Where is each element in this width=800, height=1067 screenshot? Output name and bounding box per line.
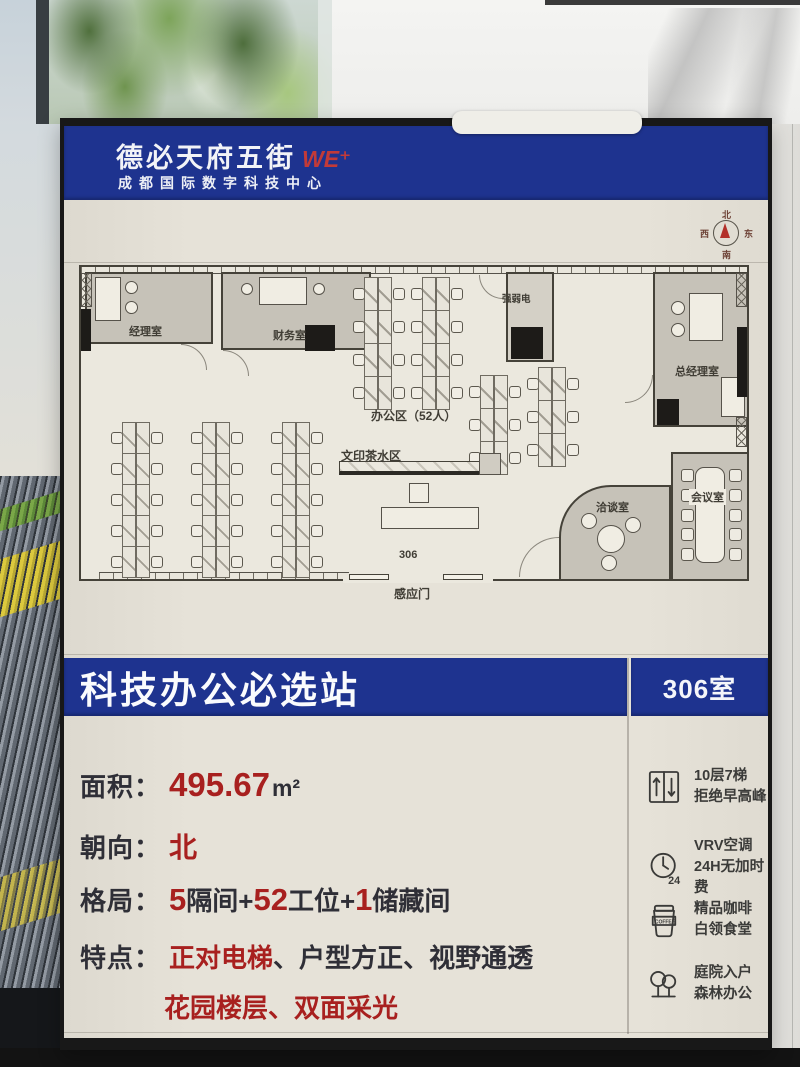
pillar bbox=[81, 309, 91, 351]
orientation-value: 北 bbox=[169, 826, 197, 866]
chair bbox=[125, 281, 138, 294]
compass-west-label: 西 bbox=[700, 227, 709, 240]
chair bbox=[411, 354, 423, 366]
room-negotiation-label: 洽谈室 bbox=[596, 499, 629, 515]
chair bbox=[311, 525, 323, 537]
chair bbox=[125, 301, 138, 314]
compass-east-label: 东 bbox=[744, 227, 753, 240]
door-swing bbox=[479, 275, 503, 299]
chair bbox=[311, 463, 323, 475]
chair bbox=[451, 387, 463, 399]
room-electrical-label: 强弱电 bbox=[502, 291, 531, 305]
poster-base bbox=[0, 1048, 800, 1067]
desk bbox=[282, 484, 296, 516]
chair bbox=[729, 548, 742, 561]
pillar bbox=[511, 327, 543, 359]
compass-south-label: 南 bbox=[722, 248, 731, 261]
desk bbox=[552, 367, 566, 401]
desk bbox=[216, 515, 230, 547]
desk bbox=[122, 546, 136, 578]
desk bbox=[436, 343, 450, 377]
desk bbox=[95, 277, 121, 321]
chair bbox=[191, 432, 203, 444]
chair bbox=[353, 288, 365, 300]
chair bbox=[111, 556, 123, 568]
desk bbox=[436, 376, 450, 410]
chair bbox=[151, 556, 163, 568]
chair bbox=[567, 444, 579, 456]
clock-24-badge: 24 bbox=[668, 874, 680, 886]
chair bbox=[311, 432, 323, 444]
desk bbox=[282, 453, 296, 485]
chair bbox=[231, 494, 243, 506]
compass-icon: 北 南 西 东 bbox=[700, 208, 752, 258]
room-number-label: 306 bbox=[399, 549, 417, 561]
chair bbox=[111, 494, 123, 506]
chair bbox=[729, 489, 742, 502]
chair bbox=[729, 528, 742, 541]
chair bbox=[567, 411, 579, 423]
layout-label: 格局： bbox=[80, 881, 161, 918]
chair bbox=[527, 444, 539, 456]
amenity-elevator: 10层7梯拒绝早高峰 bbox=[644, 765, 768, 809]
desk bbox=[296, 546, 310, 578]
door-swing bbox=[223, 350, 249, 376]
chair bbox=[353, 387, 365, 399]
room-finance-label: 财务室 bbox=[273, 327, 306, 343]
banner: 科技办公必选站 bbox=[64, 658, 627, 716]
desk bbox=[282, 422, 296, 454]
banner-room-box: 306室 bbox=[631, 658, 768, 716]
coffee-badge: COFFEE bbox=[655, 919, 676, 925]
chair bbox=[313, 283, 325, 295]
feature-separator: 、 bbox=[273, 938, 299, 975]
chair bbox=[625, 517, 641, 533]
window-bright-edge bbox=[318, 0, 332, 124]
chair bbox=[231, 463, 243, 475]
window-frame bbox=[36, 0, 49, 124]
layout-count-seats: 52 bbox=[253, 882, 287, 918]
desk bbox=[552, 400, 566, 434]
window-with-trees bbox=[36, 0, 332, 124]
desk bbox=[422, 343, 436, 377]
chair bbox=[271, 463, 283, 475]
chair-column bbox=[681, 469, 694, 561]
desk bbox=[282, 515, 296, 547]
chair bbox=[567, 378, 579, 390]
compass-north-label: 北 bbox=[722, 208, 731, 221]
floor-plan: 经理室 财务室 强弱电 总经理室 洽谈室 办公区（52人） bbox=[79, 265, 749, 581]
desk bbox=[136, 422, 150, 454]
desk bbox=[122, 422, 136, 454]
amenity-line1: 精品咖啡 bbox=[694, 899, 752, 920]
feature-double-light: 双面采光 bbox=[294, 988, 398, 1025]
feature-garden-floor: 花园楼层 bbox=[164, 988, 268, 1025]
desk bbox=[202, 546, 216, 578]
desk-cluster bbox=[353, 277, 404, 409]
desk bbox=[364, 310, 378, 344]
chair bbox=[271, 525, 283, 537]
elevator-icon bbox=[644, 765, 684, 809]
sensor-door-label: 感应门 bbox=[394, 585, 430, 602]
chair bbox=[151, 525, 163, 537]
chair bbox=[111, 463, 123, 475]
carpet-stripe-yellow bbox=[0, 852, 62, 934]
desk bbox=[136, 515, 150, 547]
desk bbox=[136, 546, 150, 578]
desk bbox=[364, 376, 378, 410]
desk bbox=[259, 277, 307, 305]
desk bbox=[552, 433, 566, 467]
desk bbox=[296, 422, 310, 454]
chair bbox=[729, 469, 742, 482]
amenity-line1: 10层7梯 bbox=[694, 766, 767, 787]
chair bbox=[451, 321, 463, 333]
desk bbox=[216, 546, 230, 578]
room-manager-label: 经理室 bbox=[129, 323, 162, 339]
desk bbox=[296, 515, 310, 547]
chair bbox=[111, 432, 123, 444]
layout-text: 工位+ bbox=[288, 881, 355, 918]
desk bbox=[364, 277, 378, 311]
desk bbox=[378, 376, 392, 410]
clock-24-icon: 24 bbox=[644, 846, 684, 890]
chair bbox=[729, 509, 742, 522]
amenity-line1: 庭院入户 bbox=[694, 963, 752, 984]
amenity-line1: VRV空调 bbox=[694, 836, 768, 857]
desk bbox=[422, 277, 436, 311]
wall-brace bbox=[81, 273, 92, 307]
brand-logo: 德必天府五街 bbox=[116, 143, 296, 173]
area-value: 495.67 bbox=[169, 766, 270, 804]
desk bbox=[136, 453, 150, 485]
feature-separator: 、 bbox=[403, 938, 429, 975]
desk bbox=[422, 310, 436, 344]
chair bbox=[509, 386, 521, 398]
coffee-icon: COFFEE bbox=[644, 898, 684, 942]
trees-icon bbox=[644, 962, 684, 1006]
chair bbox=[151, 494, 163, 506]
desk bbox=[122, 515, 136, 547]
desk bbox=[689, 293, 723, 341]
features-label: 特点： bbox=[80, 938, 161, 975]
desk bbox=[202, 422, 216, 454]
carpet-stripe-green bbox=[0, 484, 62, 534]
door-swing bbox=[625, 375, 653, 403]
desk bbox=[538, 367, 552, 401]
chair bbox=[271, 556, 283, 568]
desk bbox=[494, 375, 508, 409]
desk-cluster bbox=[111, 422, 162, 577]
chair bbox=[231, 556, 243, 568]
area-unit: m² bbox=[272, 775, 300, 802]
layout-count-storage: 1 bbox=[355, 882, 372, 918]
desk bbox=[422, 376, 436, 410]
chair bbox=[393, 321, 405, 333]
chair bbox=[311, 556, 323, 568]
chair bbox=[191, 556, 203, 568]
chair bbox=[151, 463, 163, 475]
chair bbox=[111, 525, 123, 537]
desk bbox=[216, 422, 230, 454]
desk bbox=[202, 515, 216, 547]
chair bbox=[411, 288, 423, 300]
layout-text: 储藏间 bbox=[372, 881, 450, 918]
office-area-label: 办公区（52人） bbox=[371, 407, 456, 424]
wall-top-left bbox=[0, 0, 36, 130]
chair bbox=[353, 321, 365, 333]
brand-suffix-logo: WE⁺ bbox=[302, 146, 351, 172]
amenity-line2: 24H无加时费 bbox=[694, 857, 768, 899]
amenity-hvac: 24 VRV空调24H无加时费 bbox=[644, 836, 768, 899]
compass-north-arrow bbox=[720, 223, 730, 238]
chair bbox=[681, 548, 694, 561]
pillar bbox=[657, 399, 679, 425]
chair bbox=[469, 419, 481, 431]
detail-layout: 格局： 5 隔间+ 52 工位+ 1 储藏间 bbox=[80, 881, 450, 918]
desk bbox=[122, 484, 136, 516]
area-label: 面积： bbox=[80, 767, 161, 804]
chair bbox=[681, 509, 694, 522]
desk-cluster bbox=[527, 367, 578, 466]
desk bbox=[538, 433, 552, 467]
amenity-coffee: COFFEE 精品咖啡白领食堂 bbox=[644, 898, 768, 942]
chair bbox=[671, 323, 685, 337]
orientation-label: 朝向： bbox=[80, 828, 161, 865]
chair bbox=[681, 469, 694, 482]
floorplan-poster: 德必天府五街WE⁺ 成都国际数字科技中心 北 南 西 东 经理室 财务室 强弱电… bbox=[60, 118, 772, 1050]
chair bbox=[231, 525, 243, 537]
desk bbox=[202, 453, 216, 485]
chair bbox=[469, 386, 481, 398]
chair bbox=[393, 354, 405, 366]
ceiling-line bbox=[545, 0, 800, 5]
desk bbox=[296, 484, 310, 516]
desk bbox=[480, 375, 494, 409]
poster-clip bbox=[452, 111, 642, 134]
feature-elevator: 正对电梯 bbox=[169, 938, 273, 975]
panel-seam bbox=[627, 658, 629, 1034]
printer bbox=[479, 453, 501, 475]
chair bbox=[393, 288, 405, 300]
header-band: 德必天府五街WE⁺ 成都国际数字科技中心 bbox=[64, 126, 768, 200]
desk bbox=[436, 277, 450, 311]
chair bbox=[527, 378, 539, 390]
chair bbox=[271, 432, 283, 444]
desk bbox=[216, 484, 230, 516]
detail-features-line1: 特点： 正对电梯 、 户型方正 、 视野通透 bbox=[80, 938, 533, 975]
wall-seam bbox=[792, 124, 793, 1067]
door-swing bbox=[181, 344, 207, 370]
wall-brace bbox=[736, 273, 747, 307]
chair bbox=[509, 419, 521, 431]
detail-features-line2: 花园楼层 、 双面采光 bbox=[164, 988, 398, 1025]
chair bbox=[451, 288, 463, 300]
chair bbox=[671, 301, 685, 315]
chair bbox=[411, 387, 423, 399]
chair bbox=[601, 555, 617, 571]
chair bbox=[581, 513, 597, 529]
entrance-door-leaf bbox=[443, 574, 483, 580]
chair bbox=[451, 354, 463, 366]
desk bbox=[378, 277, 392, 311]
room-general-manager-label: 总经理室 bbox=[675, 363, 719, 379]
chair bbox=[191, 463, 203, 475]
desk bbox=[378, 343, 392, 377]
desk bbox=[494, 408, 508, 442]
desk bbox=[136, 484, 150, 516]
wall-right bbox=[772, 124, 800, 1067]
chair bbox=[527, 411, 539, 423]
chair bbox=[353, 354, 365, 366]
banner-title: 科技办公必选站 bbox=[80, 660, 360, 714]
layout-count-rooms: 5 bbox=[169, 882, 186, 918]
print-tea-label: 文印茶水区 bbox=[341, 447, 401, 464]
panel-seam bbox=[64, 1032, 768, 1033]
desk bbox=[282, 546, 296, 578]
amenity-line2: 白领食堂 bbox=[694, 920, 752, 941]
panel-seam bbox=[64, 654, 768, 655]
desk bbox=[480, 408, 494, 442]
desk bbox=[436, 310, 450, 344]
desk bbox=[296, 453, 310, 485]
chair bbox=[411, 321, 423, 333]
conference-table bbox=[695, 467, 725, 563]
layout-text: 隔间+ bbox=[186, 881, 253, 918]
pillar bbox=[305, 325, 335, 351]
reception-table bbox=[381, 507, 479, 529]
chair bbox=[151, 432, 163, 444]
pillar bbox=[737, 327, 747, 397]
chair bbox=[311, 494, 323, 506]
desk bbox=[378, 310, 392, 344]
amenity-line2: 森林办公 bbox=[694, 984, 752, 1005]
desk bbox=[364, 343, 378, 377]
banner-room-number: 306室 bbox=[663, 669, 736, 706]
chair bbox=[271, 494, 283, 506]
desk-cluster bbox=[191, 422, 242, 577]
chair bbox=[231, 432, 243, 444]
detail-area: 面积： 495.67 m² bbox=[80, 766, 300, 804]
door-swing bbox=[519, 537, 559, 577]
room-meeting-label: 会议室 bbox=[689, 489, 726, 505]
feature-open-view: 视野通透 bbox=[429, 938, 533, 975]
photo-of-floorplan-poster: { "poster": { "header": { "brand": "德必天府… bbox=[0, 0, 800, 1067]
entrance-door-leaf bbox=[349, 574, 389, 580]
chair bbox=[681, 528, 694, 541]
glass-reflection bbox=[648, 8, 800, 124]
desk bbox=[202, 484, 216, 516]
wall-left bbox=[0, 124, 62, 476]
carpet-stripe-yellow bbox=[0, 534, 62, 620]
chair bbox=[509, 452, 521, 464]
amenity-line2: 拒绝早高峰 bbox=[694, 787, 767, 808]
wall-brace bbox=[736, 417, 747, 447]
panel-seam bbox=[64, 262, 768, 263]
chair bbox=[241, 283, 253, 295]
feature-separator: 、 bbox=[268, 988, 294, 1025]
chair-column bbox=[729, 469, 742, 561]
striped-carpet bbox=[0, 476, 62, 1067]
chair bbox=[191, 494, 203, 506]
round-table bbox=[597, 525, 625, 553]
detail-orientation: 朝向： 北 bbox=[80, 826, 197, 866]
desk bbox=[216, 453, 230, 485]
desk-cluster bbox=[271, 422, 322, 577]
cabinet bbox=[409, 483, 429, 503]
header-subtitle: 成都国际数字科技中心 bbox=[118, 173, 328, 193]
chair bbox=[393, 387, 405, 399]
desk-cluster bbox=[411, 277, 462, 409]
desk bbox=[122, 453, 136, 485]
feature-square-layout: 户型方正 bbox=[299, 938, 403, 975]
amenity-garden: 庭院入户森林办公 bbox=[644, 962, 768, 1006]
desk bbox=[538, 400, 552, 434]
chair bbox=[191, 525, 203, 537]
